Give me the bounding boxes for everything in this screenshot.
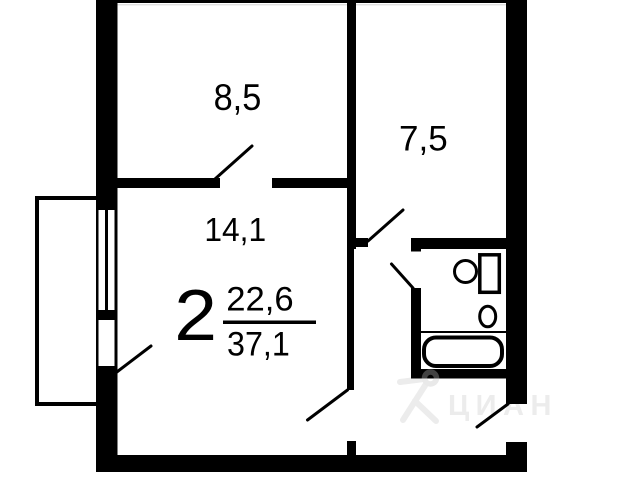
svg-text:7,5: 7,5 [399,119,448,158]
svg-text:14,1: 14,1 [204,211,266,248]
svg-text:22,6: 22,6 [226,280,293,318]
svg-text:8,5: 8,5 [214,77,262,118]
svg-text:37,1: 37,1 [227,325,290,363]
svg-text:2: 2 [174,274,217,356]
